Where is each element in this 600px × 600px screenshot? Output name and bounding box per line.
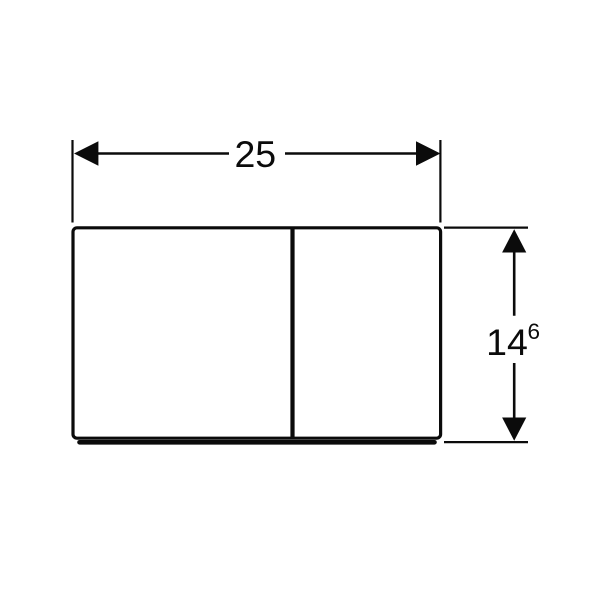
svg-text:6: 6	[528, 319, 541, 344]
svg-text:25: 25	[234, 133, 276, 175]
svg-text:14: 14	[486, 321, 528, 363]
